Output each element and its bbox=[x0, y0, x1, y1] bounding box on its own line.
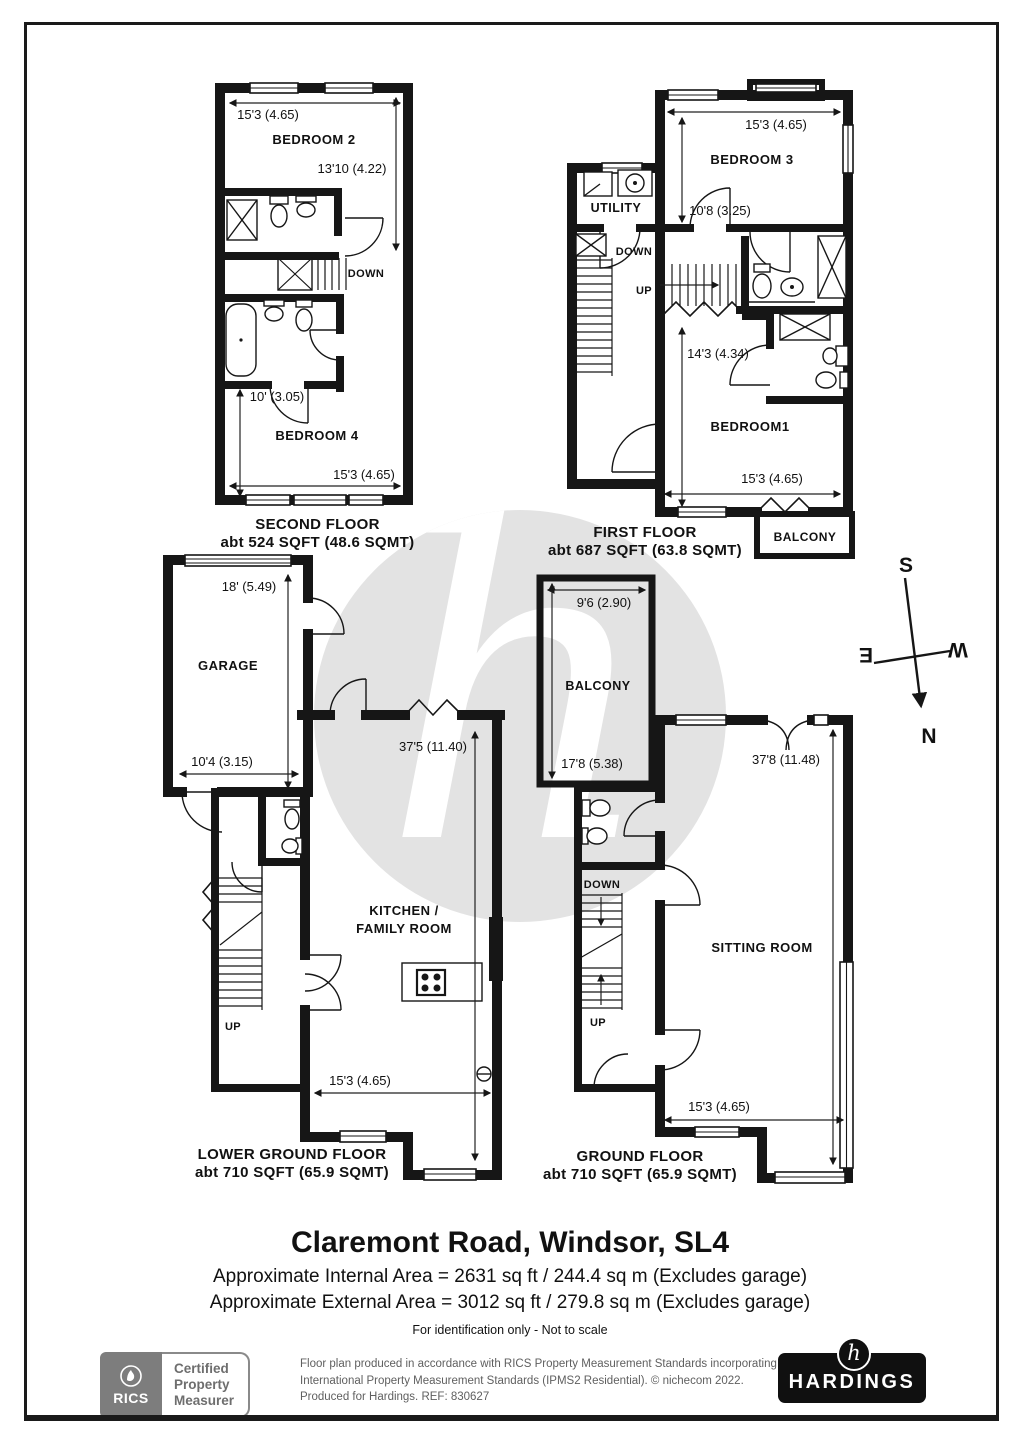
toilet-icon bbox=[270, 196, 288, 204]
toilet-icon bbox=[754, 264, 770, 272]
rics-cert-line: Measurer bbox=[174, 1393, 234, 1409]
hardings-h-icon: h bbox=[837, 1337, 871, 1371]
garage-door bbox=[185, 555, 291, 566]
dim-label: 13'10 (4.22) bbox=[318, 161, 387, 176]
identification-note: For identification only - Not to scale bbox=[0, 1323, 1020, 1337]
page-title: Claremont Road, Windsor, SL4 bbox=[0, 1226, 1020, 1260]
disclaimer-text: Floor plan produced in accordance with R… bbox=[300, 1356, 780, 1406]
room-label-balcony: BALCONY bbox=[565, 679, 630, 693]
toilet-icon bbox=[296, 300, 312, 307]
toilet-icon bbox=[840, 372, 848, 388]
floor-area: abt 687 SQFT (63.8 SQMT) bbox=[495, 542, 795, 560]
rics-brand-text: RICS bbox=[113, 1390, 148, 1406]
floor-name: FIRST FLOOR bbox=[495, 524, 795, 542]
compass-north-label: N bbox=[921, 725, 936, 748]
compass-south-label: S bbox=[899, 554, 913, 577]
external-area-text: Approximate External Area = 3012 sq ft /… bbox=[0, 1292, 1020, 1314]
room-label-sitting: SITTING ROOM bbox=[711, 940, 812, 955]
dimensions: 9'6 (2.90) 17'8 (5.38) 37'8 (11.48) 15'3… bbox=[548, 584, 843, 1164]
room-label-garage: GARAGE bbox=[198, 658, 258, 673]
internal-area-text: Approximate Internal Area = 2631 sq ft /… bbox=[0, 1266, 1020, 1288]
dim-label: 37'8 (11.48) bbox=[752, 752, 820, 767]
stairs bbox=[580, 893, 622, 1010]
dim-label: 14'3 (4.34) bbox=[687, 346, 749, 361]
floor-name: SECOND FLOOR bbox=[165, 516, 470, 534]
toilet-icon bbox=[284, 800, 300, 807]
rics-lion-icon bbox=[118, 1364, 144, 1388]
disclaimer-line: Floor plan produced in accordance with R… bbox=[300, 1356, 780, 1373]
compass-west-label: W bbox=[948, 638, 968, 661]
stairs-up-label: UP bbox=[636, 285, 652, 297]
room-label-bedroom4: BEDROOM 4 bbox=[275, 428, 359, 443]
kitchen-fixtures bbox=[402, 963, 491, 1081]
room-label-bedroom1: BEDROOM1 bbox=[710, 419, 789, 434]
second-floor-plan: 15'3 (4.65) 13'10 (4.22) 10' (3.05) 15'3… bbox=[205, 72, 420, 520]
floor-area: abt 710 SQFT (65.9 SQMT) bbox=[487, 1166, 793, 1184]
dim-label: 15'3 (4.65) bbox=[741, 471, 803, 486]
stairs bbox=[278, 258, 346, 290]
disclaimer-line: Produced for Hardings. REF: 830627 bbox=[300, 1389, 780, 1406]
dim-label: 10'4 (3.15) bbox=[191, 754, 253, 769]
dim-label: 17'8 (5.38) bbox=[561, 756, 623, 771]
rics-logo: RICS bbox=[100, 1352, 162, 1418]
hob-icon bbox=[417, 970, 445, 995]
sink-icon bbox=[836, 346, 848, 366]
rics-cert-line: Certified bbox=[174, 1361, 234, 1377]
ground-floor-caption: GROUND FLOOR abt 710 SQFT (65.9 SQMT) bbox=[487, 1148, 793, 1183]
floor-area: abt 524 SQFT (48.6 SQMT) bbox=[165, 534, 470, 552]
first-floor-plan: 15'3 (4.65) 10'8 (3.25) 14'3 (4.34) 15'3… bbox=[558, 80, 860, 566]
dim-label: 10' (3.05) bbox=[250, 389, 305, 404]
room-label-bedroom2: BEDROOM 2 bbox=[272, 132, 355, 147]
hardings-brand-text: HARDINGS bbox=[789, 1371, 916, 1394]
dim-label: 15'3 (4.65) bbox=[237, 107, 299, 122]
walls bbox=[540, 578, 848, 1178]
wc-fixtures bbox=[582, 800, 610, 844]
opening-zigzag bbox=[203, 700, 462, 934]
stairs-up-label: UP bbox=[590, 1017, 606, 1029]
sink-icon bbox=[296, 196, 316, 202]
dim-label: 15'3 (4.65) bbox=[688, 1099, 750, 1114]
dim-label: 15'3 (4.65) bbox=[329, 1073, 391, 1088]
room-label-bedroom3: BEDROOM 3 bbox=[710, 152, 793, 167]
sink-icon bbox=[264, 300, 284, 306]
dim-label: 15'3 (4.65) bbox=[333, 467, 395, 482]
hardings-h-letter: h bbox=[847, 1343, 861, 1364]
certified-property-measurer-label: Certified Property Measurer bbox=[162, 1352, 250, 1418]
bathroom-fixtures bbox=[226, 196, 316, 376]
rics-badge: RICS Certified Property Measurer bbox=[100, 1352, 250, 1418]
chimney-breast bbox=[489, 917, 503, 981]
doors bbox=[594, 720, 812, 1088]
stairs-down-label: DOWN bbox=[616, 246, 652, 258]
stairs bbox=[218, 878, 262, 1010]
room-label-kitchen: KITCHEN / bbox=[369, 903, 439, 918]
dim-label: 18' (5.49) bbox=[222, 579, 277, 594]
disclaimer-line: International Property Measurement Stand… bbox=[300, 1373, 780, 1390]
second-floor-caption: SECOND FLOOR abt 524 SQFT (48.6 SQMT) bbox=[165, 516, 470, 551]
compass-rose: S N E W bbox=[855, 548, 1005, 753]
stairs-down-label: DOWN bbox=[584, 879, 620, 891]
room-label-utility: UTILITY bbox=[591, 201, 642, 215]
dim-label: 10'8 (3.25) bbox=[689, 203, 751, 218]
walls bbox=[572, 82, 848, 512]
first-floor-caption: FIRST FLOOR abt 687 SQFT (63.8 SQMT) bbox=[495, 524, 795, 559]
dim-label: 15'3 (4.65) bbox=[745, 117, 807, 132]
lower-ground-floor-caption: LOWER GROUND FLOOR abt 710 SQFT (65.9 SQ… bbox=[137, 1146, 447, 1181]
ground-floor-plan: 9'6 (2.90) 17'8 (5.38) 37'8 (11.48) 15'3… bbox=[523, 560, 860, 1192]
compass-ns-needle bbox=[905, 578, 921, 706]
dim-label: 37'5 (11.40) bbox=[399, 739, 467, 754]
stairs-down-label: DOWN bbox=[348, 268, 384, 280]
room-label-kitchen: FAMILY ROOM bbox=[356, 921, 452, 936]
compass-ew-needle bbox=[874, 651, 950, 663]
dim-label: 9'6 (2.90) bbox=[577, 595, 632, 610]
floor-name: LOWER GROUND FLOOR bbox=[137, 1146, 447, 1164]
floor-area: abt 710 SQFT (65.9 SQMT) bbox=[137, 1164, 447, 1182]
lower-ground-floor-plan: 18' (5.49) 10'4 (3.15) 37'5 (11.40) 15'3… bbox=[153, 550, 510, 1192]
toilet-icon bbox=[582, 800, 590, 816]
rics-cert-line: Property bbox=[174, 1377, 234, 1393]
compass-east-label: E bbox=[859, 643, 873, 666]
wc-fixtures bbox=[282, 800, 302, 854]
floor-name: GROUND FLOOR bbox=[487, 1148, 793, 1166]
stairs-up-label: UP bbox=[225, 1021, 241, 1033]
